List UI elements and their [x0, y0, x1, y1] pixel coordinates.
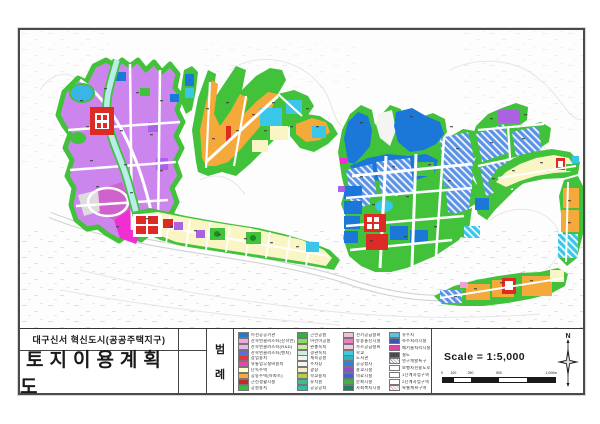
legend-item: 연구개발특구 — [389, 359, 433, 365]
scale-tick: 250 — [468, 371, 474, 375]
scale-tick: 100 — [450, 371, 456, 375]
legend-label: 산학연클러스터(R&D) — [251, 345, 293, 349]
legend-item: 1단계사업구역 — [389, 372, 433, 378]
legend-swatch — [389, 379, 400, 385]
title-strip: 대구신서 혁신도시(공공주택지구) 토지이용계획도 범 례 이전공공기관산학연클… — [20, 328, 583, 393]
legend-label: 1단계사업구역 — [402, 373, 429, 377]
legend-swatch — [238, 385, 249, 391]
scale-text: Scale = 1:5,000 — [444, 351, 525, 363]
legend-header-char-1: 범 — [215, 341, 225, 357]
legend-swatch — [343, 385, 354, 391]
legend-label: 철도 — [402, 353, 410, 357]
legend-item: 유수지 — [389, 332, 433, 338]
legend-swatch — [389, 372, 400, 378]
legend-swatch — [389, 358, 400, 364]
legend-swatch — [389, 332, 400, 338]
legend-swatch — [389, 385, 400, 391]
legend-item: 사회복지시설 — [343, 385, 387, 391]
scale-tick: 0 — [441, 371, 443, 375]
legend-label: 공공공지 — [310, 386, 326, 390]
legend-label: 보행자전용도로 — [402, 366, 431, 370]
scale-bar-segment — [443, 378, 454, 382]
legend-label: 산학연클러스터(산학연) — [251, 339, 295, 343]
legend-item: 2단계사업구역 — [389, 379, 433, 385]
legend-item: 공공공지 — [297, 385, 341, 391]
legend-label: 2단계사업구역 — [402, 380, 429, 384]
legend-label: 산학연클러스터(벤처) — [251, 351, 291, 355]
legend-label: 전기공급설비 — [356, 333, 380, 337]
legend-header-char-2: 례 — [215, 366, 225, 382]
scale-bar-segments — [442, 377, 556, 383]
legend-label: 유통업무설비용지 — [251, 362, 284, 366]
legend-label: 연구개발특구 — [402, 359, 426, 363]
legend-item: 철도 — [389, 352, 433, 358]
legend-label: 가스공급설비 — [356, 345, 380, 349]
legend-column-2: 근린공원어린이공원완충녹지경관녹지체육공원주차장광장학교용지유치원공공공지 — [297, 332, 341, 391]
legend-label: 체육공원 — [310, 356, 326, 360]
legend-swatch — [389, 338, 400, 344]
legend-swatch — [389, 345, 400, 351]
scale-bar: 01002505001,000m — [442, 371, 556, 383]
legend-label: 경관녹지 — [310, 351, 326, 355]
legend-label: 근린생활시설 — [251, 380, 275, 384]
legend-column-3: 전기공급설비방송통신시설가스공급설비학교도서관공공청사종교시설의료시설문화시설사… — [343, 332, 387, 391]
legend-label: 폐기물처리시설 — [402, 346, 431, 350]
legend-label: 하수처리시설 — [402, 339, 426, 343]
legend-column-4: 유수지하수처리시설폐기물처리시설철도연구개발특구보행자전용도로1단계사업구역2단… — [389, 332, 433, 391]
legend-label: 근린공원 — [310, 333, 326, 337]
legend-label: 종교시설 — [356, 368, 372, 372]
scale-bar-segment — [454, 378, 471, 382]
map-frame: 대구신서 혁신도시(공공주택지구) 토지이용계획도 범 례 이전공공기관산학연클… — [18, 28, 585, 395]
legend-label: 상업용지 — [251, 356, 267, 360]
legend-label: 공원용지 — [251, 386, 267, 390]
legend-item: 폐기물처리시설 — [389, 345, 433, 351]
legend-label: 광장 — [310, 368, 318, 372]
legend-label: 문화시설 — [356, 380, 372, 384]
legend-swatch — [297, 385, 308, 391]
land-use-plan-sheet: 대구신서 혁신도시(공공주택지구) 토지이용계획도 범 례 이전공공기관산학연클… — [0, 0, 600, 424]
scale-bar-segment — [527, 378, 555, 382]
legend-label: 유치원 — [310, 380, 322, 384]
legend-item: 보행자전용도로 — [389, 365, 433, 371]
legend-grid: 이전공공기관산학연클러스터(산학연)산학연클러스터(R&D)산학연클러스터(벤처… — [234, 329, 435, 393]
legend-label: 공공청사 — [356, 362, 372, 366]
legend-label: 특별계획구역 — [402, 386, 426, 390]
legend-label: 유수지 — [402, 333, 414, 337]
legend-label: 학교용지 — [310, 374, 326, 378]
legend-label: 이전공공기관 — [251, 333, 275, 337]
sheet-title: 토지이용계획도 — [20, 351, 179, 393]
scale-bar-segment — [471, 378, 499, 382]
legend-item: 하수처리시설 — [389, 339, 433, 345]
legend-label: 주차장 — [310, 362, 322, 366]
legend-label: 어린이공원 — [310, 339, 330, 343]
legend-item: 공원용지 — [238, 385, 295, 391]
sheet-title-text: 토지이용계획도 — [20, 345, 178, 399]
legend-column-1: 이전공공기관산학연클러스터(산학연)산학연클러스터(R&D)산학연클러스터(벤처… — [238, 332, 295, 391]
scale-box: Scale = 1:5,000 01002505001,000m N — [431, 329, 583, 393]
landuse-map — [20, 30, 583, 329]
map-canvas — [20, 30, 583, 329]
north-label: N — [565, 333, 570, 340]
legend-label: 도서관 — [356, 356, 368, 360]
legend-label: 방송통신시설 — [356, 339, 380, 343]
legend-item: 특별계획구역 — [389, 385, 433, 391]
legend-swatch — [389, 352, 400, 358]
legend-swatch — [389, 365, 400, 371]
north-arrow: N — [556, 331, 580, 389]
scale-ticks: 01002505001,000m — [442, 371, 556, 376]
legend-label: 의료시설 — [356, 374, 372, 378]
legend-label: 단독주택 — [251, 368, 267, 372]
legend-label: 공동주택(아파트) — [251, 374, 283, 378]
spacer-column — [179, 329, 207, 393]
legend-label: 사회복지시설 — [356, 386, 380, 390]
legend-header: 범 례 — [207, 329, 234, 393]
legend-label: 학교 — [356, 351, 364, 355]
scale-bar-segment — [499, 378, 527, 382]
scale-tick: 500 — [496, 371, 502, 375]
legend-label: 완충녹지 — [310, 345, 326, 349]
